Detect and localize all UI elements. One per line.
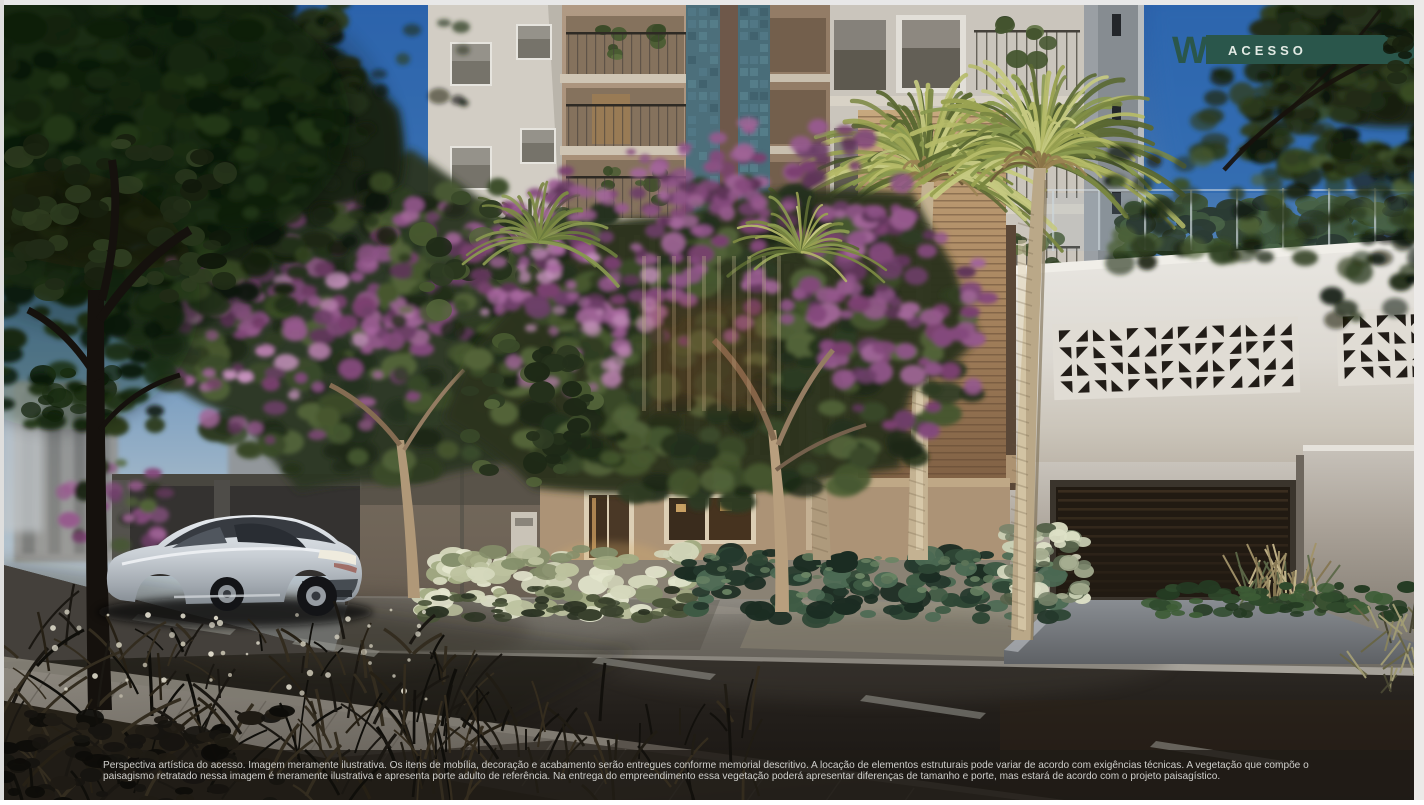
svg-text:Perspectiva artística do acess: Perspectiva artística do acesso. Imagem … [103,760,1309,771]
svg-text:W: W [1172,30,1208,72]
svg-text:ACESSO: ACESSO [1228,43,1307,58]
svg-text:paisagismo retratado nessa ima: paisagismo retratado nessa imagem é mera… [103,771,1220,782]
